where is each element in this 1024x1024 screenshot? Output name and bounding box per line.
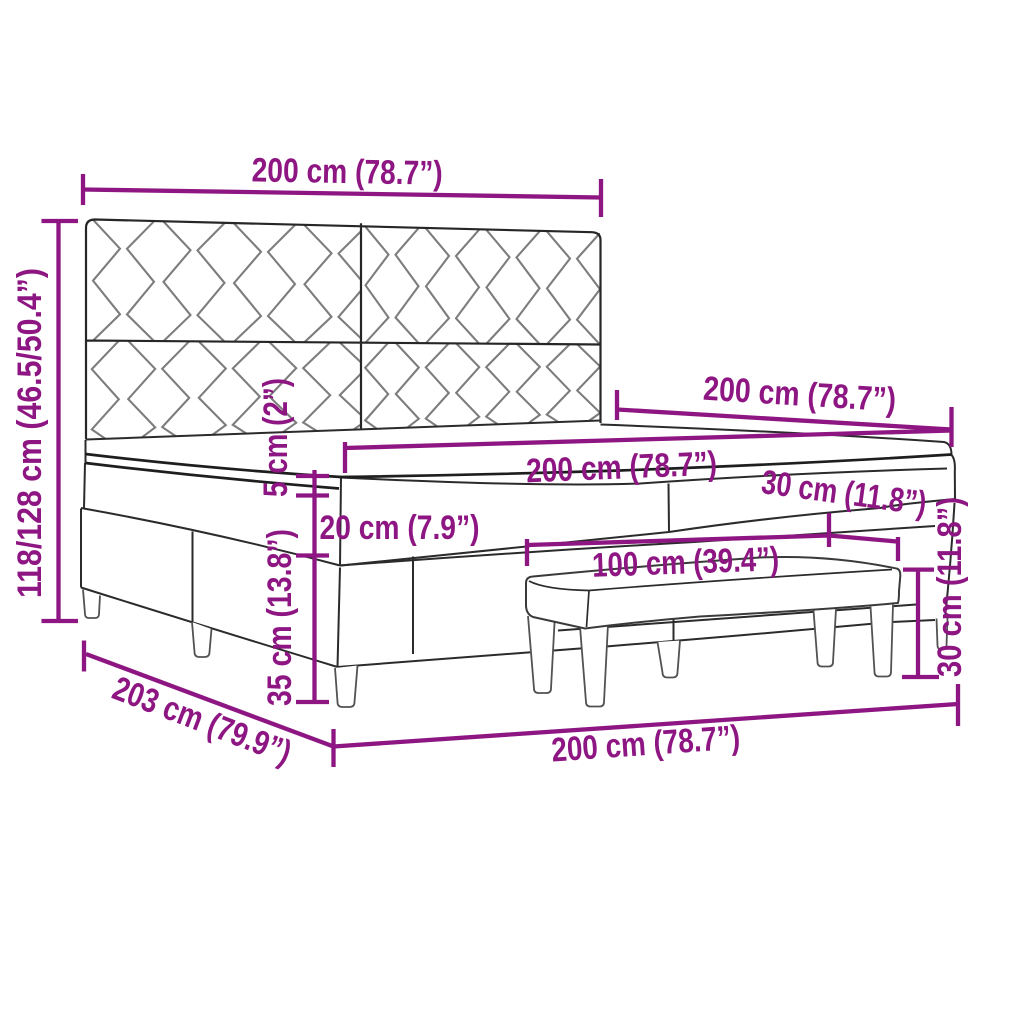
svg-text:35 cm (13.8”): 35 cm (13.8”) [261,529,299,706]
svg-text:5 cm (2”): 5 cm (2”) [257,378,295,497]
svg-text:30 cm (11.8”): 30 cm (11.8”) [931,497,969,677]
svg-text:118/128 cm (46.5/50.4”): 118/128 cm (46.5/50.4”) [11,268,49,598]
svg-text:20 cm (7.9”): 20 cm (7.9”) [320,509,480,547]
svg-text:100 cm (39.4”): 100 cm (39.4”) [592,540,780,585]
svg-text:200 cm (78.7”): 200 cm (78.7”) [525,445,717,491]
svg-text:200 cm (78.7”): 200 cm (78.7”) [251,151,443,192]
